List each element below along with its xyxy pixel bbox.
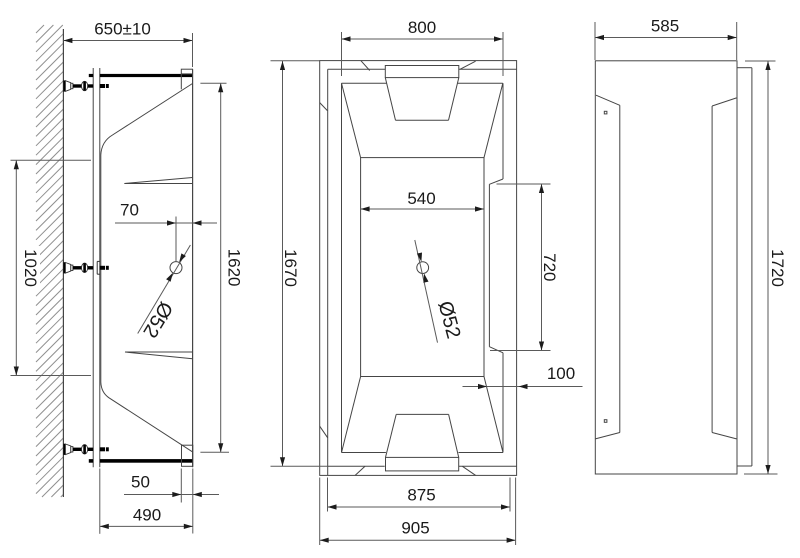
svg-text:720: 720: [540, 253, 559, 281]
svg-text:650±10: 650±10: [94, 20, 151, 39]
svg-text:100: 100: [547, 364, 575, 383]
svg-text:540: 540: [407, 189, 435, 208]
svg-text:800: 800: [408, 18, 436, 37]
svg-text:70: 70: [120, 201, 139, 220]
svg-text:1720: 1720: [768, 249, 787, 287]
svg-text:905: 905: [401, 519, 429, 538]
svg-text:1020: 1020: [21, 249, 40, 287]
svg-text:1670: 1670: [281, 249, 300, 287]
svg-text:875: 875: [407, 486, 435, 505]
svg-text:490: 490: [133, 506, 161, 525]
svg-text:1620: 1620: [225, 249, 244, 287]
svg-text:50: 50: [131, 473, 150, 492]
svg-text:585: 585: [651, 17, 679, 36]
